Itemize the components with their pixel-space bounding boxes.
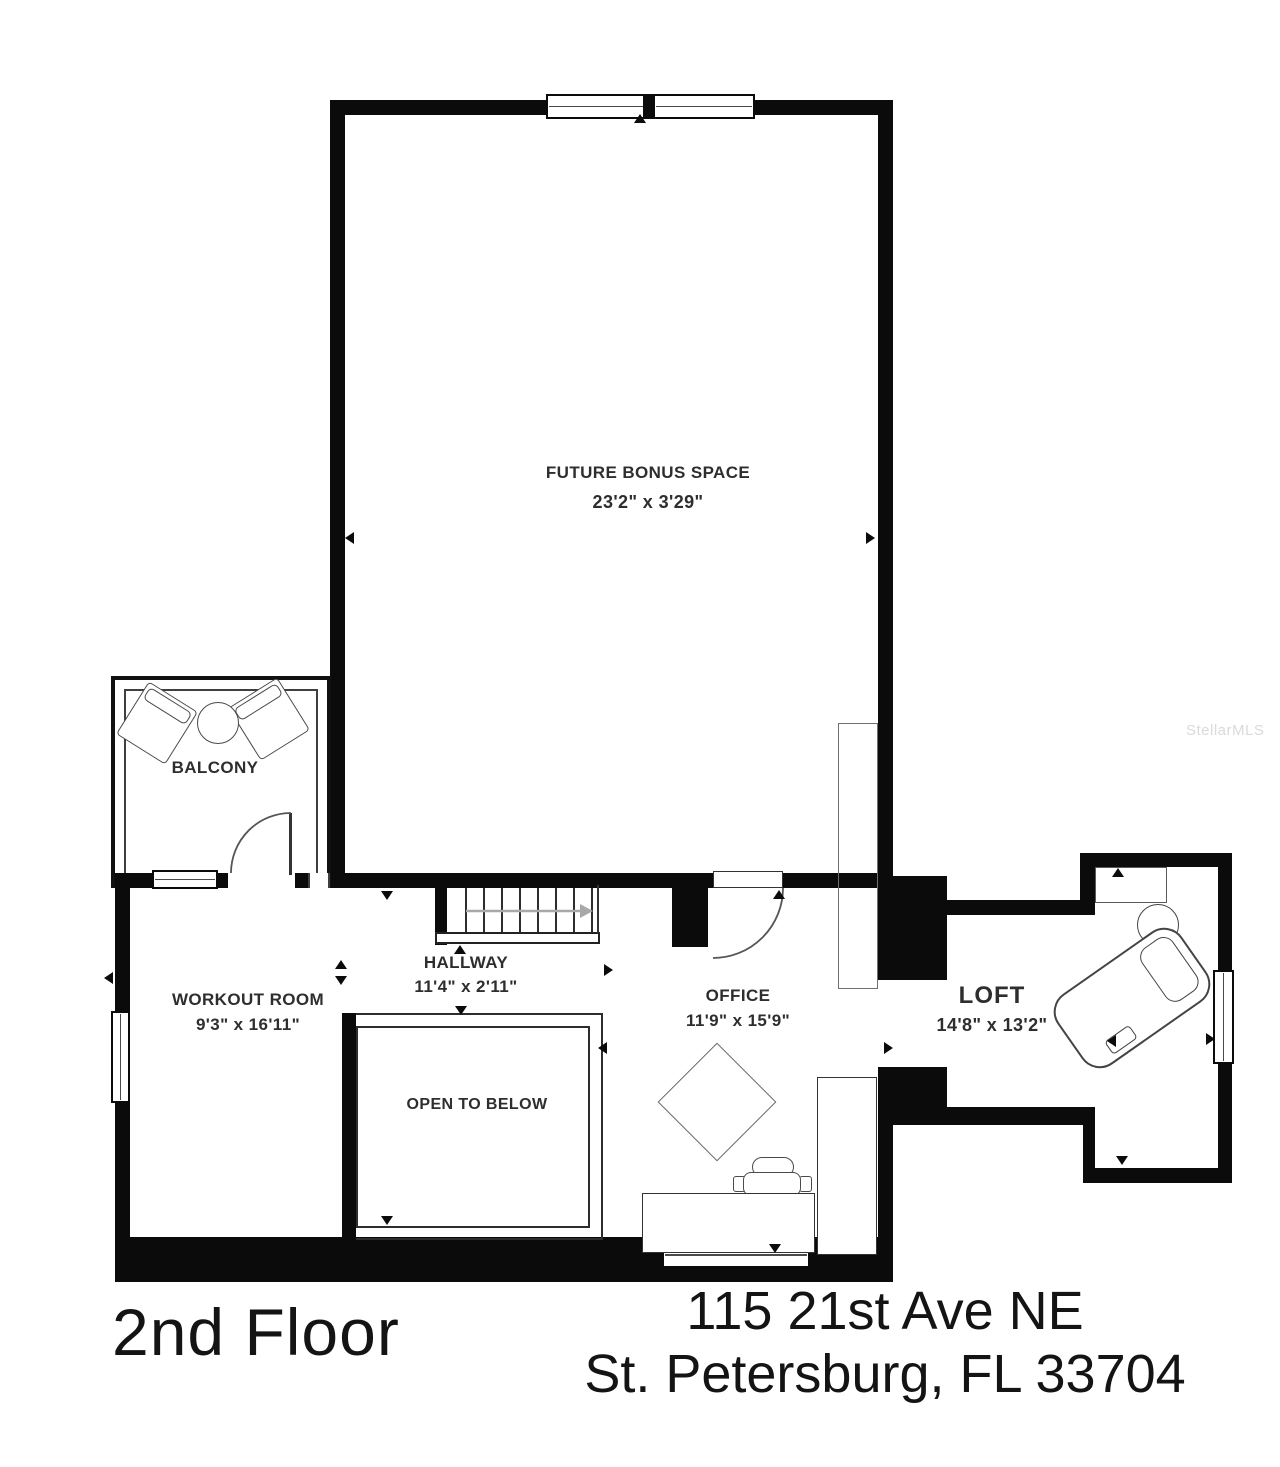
room-label-bonus: FUTURE BONUS SPACE [546,463,750,483]
window [152,870,218,889]
door-leaf [289,813,292,875]
wall [345,873,713,888]
wall [750,100,893,115]
room-label-workout: WORKOUT ROOM [172,990,324,1010]
wall-junction [308,873,330,888]
dimension-arrow [381,1216,393,1225]
stair-tread [591,888,593,932]
address-line1: 115 21st Ave NE [555,1280,1215,1343]
dimension-arrow [1112,868,1124,877]
wall [878,876,947,980]
office-cabinet [817,1077,877,1255]
stair-tread [465,888,467,932]
dimension-arrow [1107,1035,1116,1047]
room-label-office: OFFICE [706,986,771,1006]
open-to-below-inner [356,1026,590,1228]
address-line2: St. Petersburg, FL 33704 [555,1343,1215,1406]
dimension-arrow [335,976,347,985]
window [1213,970,1234,1064]
wall [1218,853,1232,973]
loft-chaise [1045,919,1219,1077]
room-dims-workout: 9'3" x 16'11" [196,1015,300,1035]
dimension-arrow [455,1006,467,1015]
floor-plan: FUTURE BONUS SPACE 23'2" x 3'29" BALCONY… [0,0,1280,1467]
room-label-loft: LOFT [959,982,1026,1010]
stair-tread [483,888,485,932]
dimension-arrow [773,890,785,899]
wall [1218,1062,1232,1183]
room-label-open-below: OPEN TO BELOW [407,1096,548,1114]
stair-tread [537,888,539,932]
room-dims-hallway: 11'4" x 2'11" [414,977,517,997]
dimension-arrow [335,960,347,969]
wall [1083,1168,1232,1183]
stair-rail [435,932,600,944]
room-label-hallway: HALLWAY [424,953,508,973]
stellar-mls-watermark: StellarMLS [1186,722,1264,739]
dimension-arrow [104,972,113,984]
wall [878,900,1083,915]
wall [940,1107,1095,1125]
wall [1080,853,1232,867]
stair-tread [519,888,521,932]
wall [115,873,130,1013]
dimension-arrow [769,1244,781,1253]
room-dims-office: 11'9" x 15'9" [686,1011,790,1031]
wall [1080,853,1095,915]
dimension-arrow [884,1042,893,1054]
room-label-balcony: BALCONY [172,758,259,778]
wall [672,885,708,947]
window [546,94,648,119]
stair-tread [555,888,557,932]
stair-edge [597,885,599,933]
wall [878,1067,947,1125]
dimension-arrow [345,532,354,544]
room-dims-bonus: 23'2" x 3'29" [593,492,704,513]
dimension-arrow [604,964,613,976]
dimension-arrow [866,532,875,544]
wall [330,100,554,115]
dimension-arrow [634,114,646,123]
floor-title: 2nd Floor [112,1294,400,1370]
address-block: 115 21st Ave NE St. Petersburg, FL 33704 [555,1280,1215,1406]
wall-outline-strip [838,723,878,989]
office-desk [642,1193,815,1253]
office-rug [658,1043,777,1162]
wall [342,1013,356,1240]
wall [878,100,893,888]
wall [330,100,345,888]
dimension-arrow [381,891,393,900]
stair-tread [501,888,503,932]
wall [878,1125,893,1282]
door-leaf [713,871,783,888]
room-dims-loft: 14'8" x 13'2" [937,1015,1048,1036]
dimension-arrow [1206,1033,1215,1045]
window [653,94,755,119]
stair-tread [573,888,575,932]
dimension-arrow [598,1042,607,1054]
dimension-arrow [1116,1156,1128,1165]
loft-closet [1095,867,1167,903]
wall [1083,1117,1095,1183]
balcony-table [197,702,239,744]
window [111,1011,130,1103]
